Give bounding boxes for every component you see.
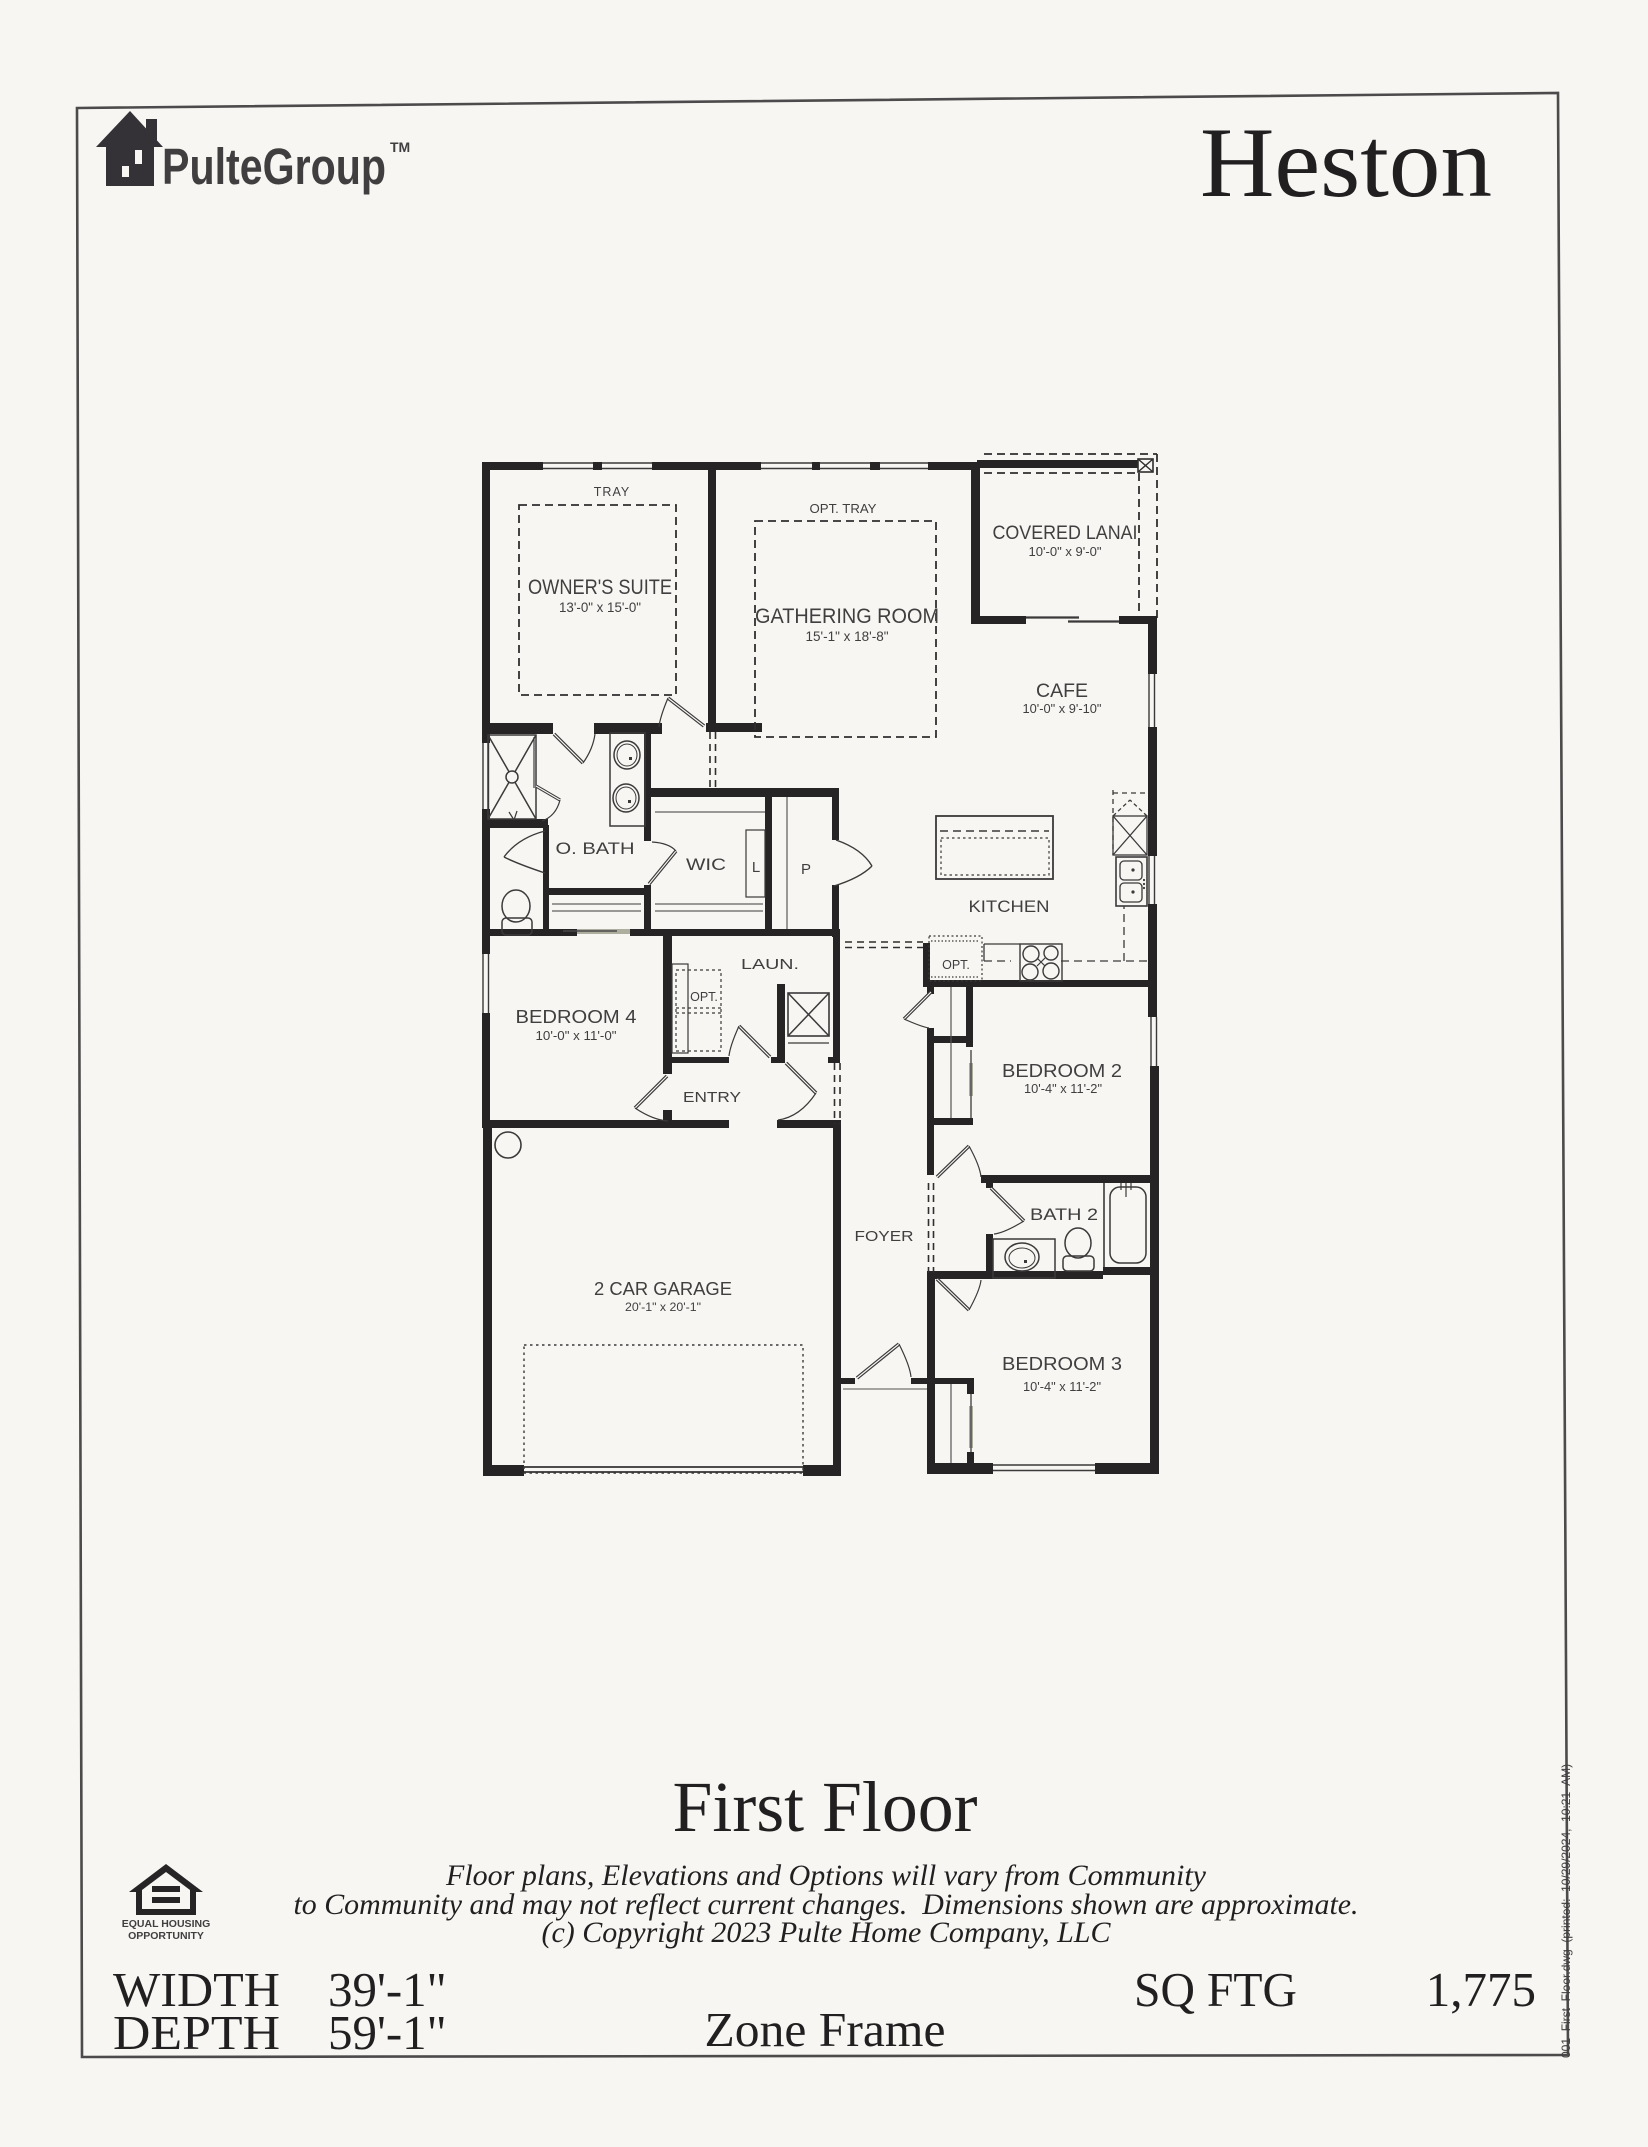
svg-text:DEPTH: DEPTH [113,2005,280,2060]
svg-text:TM: TM [390,139,410,155]
svg-text:SQ FTG: SQ FTG [1134,1962,1297,2017]
svg-text:LAUN.: LAUN. [741,956,799,973]
svg-text:First Floor: First Floor [673,1767,978,1847]
svg-text:BEDROOM 3: BEDROOM 3 [1002,1353,1122,1374]
svg-text:10'-0" x 9'-10": 10'-0" x 9'-10" [1023,702,1102,716]
svg-text:001 First Floor.dwg (printe: 001 First Floor.dwg (printed: 10/29/2024… [1559,1764,1573,2058]
svg-text:GATHERING ROOM: GATHERING ROOM [755,605,939,628]
svg-text:10'-4" x 11'-2": 10'-4" x 11'-2" [1023,1380,1101,1394]
svg-text:WIC: WIC [686,855,726,874]
svg-text:Zone Frame: Zone Frame [705,2002,946,2057]
svg-text:BEDROOM 2: BEDROOM 2 [1002,1060,1122,1081]
svg-text:ENTRY: ENTRY [683,1089,741,1106]
svg-text:10'-0" x 9'-0": 10'-0" x 9'-0" [1029,545,1102,559]
svg-text:KITCHEN: KITCHEN [969,897,1050,916]
svg-text:FOYER: FOYER [855,1228,914,1245]
svg-text:10'-0" x 11'-0": 10'-0" x 11'-0" [536,1029,617,1043]
svg-text:TRAY: TRAY [594,485,630,499]
svg-text:Heston: Heston [1200,107,1492,218]
svg-text:EQUAL HOUSING: EQUAL HOUSING [122,1918,210,1930]
svg-text:COVERED LANAI: COVERED LANAI [993,523,1138,544]
svg-text:O. BATH: O. BATH [556,839,635,858]
svg-text:OPT.: OPT. [942,958,970,972]
svg-text:13'-0" x 15'-0": 13'-0" x 15'-0" [559,600,641,615]
svg-text:PulteGroup: PulteGroup [162,138,386,195]
svg-text:1,775: 1,775 [1426,1962,1536,2017]
svg-text:20'-1" x 20'-1": 20'-1" x 20'-1" [625,1302,701,1314]
svg-text:59'-1": 59'-1" [328,2005,447,2060]
svg-text:BATH 2: BATH 2 [1030,1205,1098,1224]
svg-text:OPT.: OPT. [690,990,718,1004]
svg-text:OPT. TRAY: OPT. TRAY [810,502,878,516]
svg-text:CAFE: CAFE [1036,681,1088,702]
svg-text:(c) Copyright 2023 Pulte Home: (c) Copyright 2023 Pulte Home Company, L… [542,1916,1112,1949]
svg-text:OWNER'S SUITE: OWNER'S SUITE [528,576,672,599]
svg-text:OPPORTUNITY: OPPORTUNITY [128,1930,204,1942]
svg-text:15'-1" x 18'-8": 15'-1" x 18'-8" [806,629,889,644]
svg-text:2 CAR GARAGE: 2 CAR GARAGE [594,1278,732,1299]
svg-text:10'-4" x 11'-2": 10'-4" x 11'-2" [1024,1082,1102,1096]
svg-text:BEDROOM 4: BEDROOM 4 [516,1006,637,1027]
svg-text:L: L [752,859,760,876]
svg-text:P: P [801,861,811,878]
